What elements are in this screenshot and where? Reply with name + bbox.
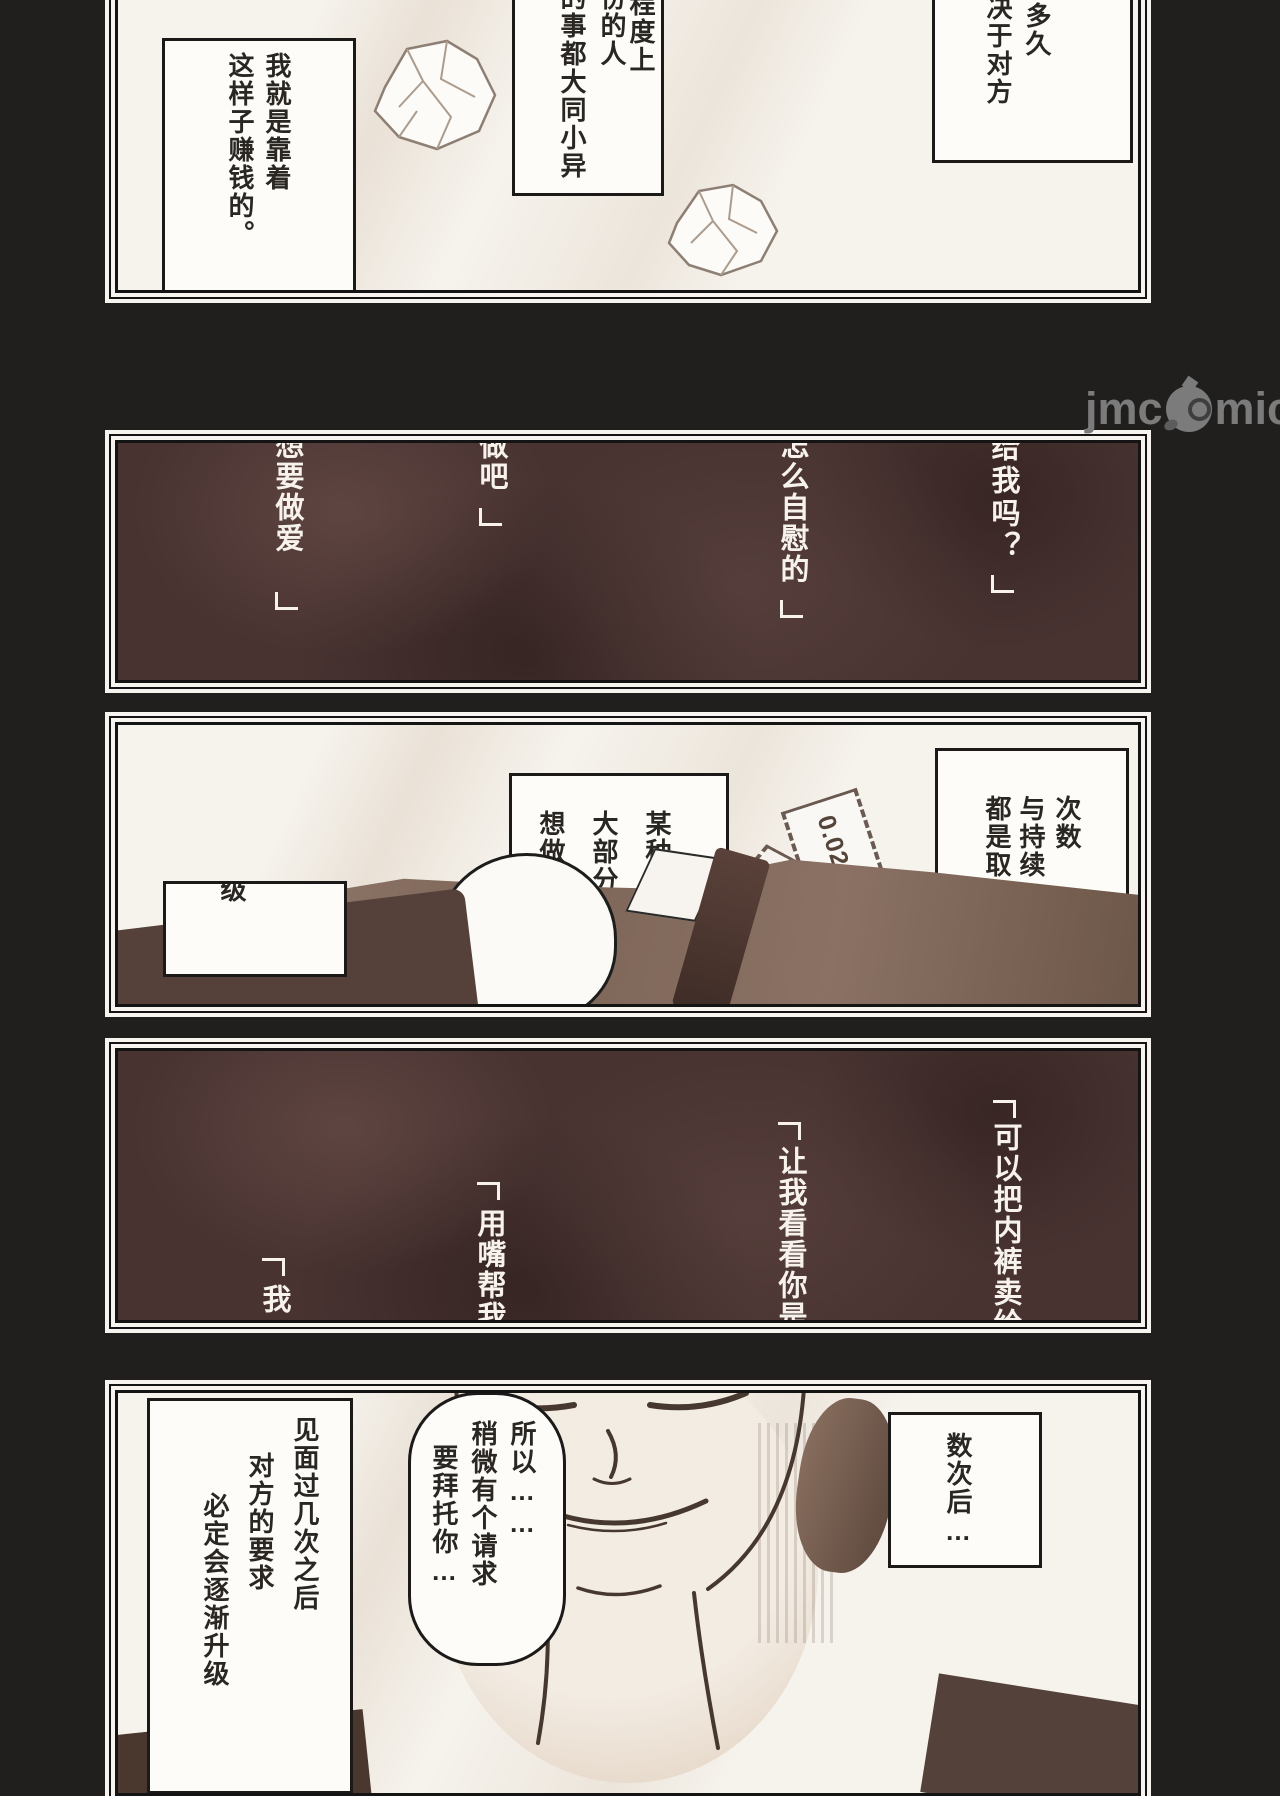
crumpled-paper-icon: [355, 25, 515, 165]
panel-2: 给我吗？ 怎么自慰的 做吧 想要做爱: [115, 440, 1141, 683]
dialogue-column: 程度上: [628, 0, 654, 74]
open-quote-bracket: [477, 1182, 500, 1200]
narration-column: 给我吗？: [988, 440, 1017, 564]
narration-column: 怎么自慰的: [777, 440, 806, 585]
panel-3: 某种程 大部分 想做的 次数 与持续 都是取 0.02 级: [115, 722, 1141, 1007]
dialogue-column: 稍微有个请求: [470, 1420, 496, 1588]
panel-4: 可以把内裤卖给 让我看看你是怎 用嘴帮我做 我: [115, 1048, 1141, 1323]
dialogue-column: 要拜托你…: [431, 1444, 457, 1588]
dialogue-column: 多久: [1024, 2, 1050, 58]
narration-column: 想要做爱: [272, 440, 301, 554]
watermark-text-right: mic: [1215, 383, 1280, 435]
dialogue-column: 的事都大同小异: [559, 0, 585, 180]
open-quote-bracket: [993, 1100, 1016, 1118]
close-quote-bracket: [780, 600, 803, 618]
dialogue-column: 我就是靠着: [264, 52, 290, 192]
narration-box: 级: [163, 881, 347, 977]
watermark-text-left: jmc: [1085, 383, 1163, 435]
dialogue-column: 与持续: [1018, 795, 1044, 879]
narration-column: 让我看看你是怎: [775, 1146, 804, 1323]
bird-mascot-icon: [1166, 386, 1212, 432]
panel-5: 数次后… 所以…… 稍微有个请求 要拜托你… 见面过几次之后 对方的要求 必定会…: [115, 1390, 1141, 1796]
narration-column: 我: [259, 1284, 288, 1315]
dialogue-column: 都是取: [984, 795, 1010, 879]
dialogue-column: 数次后…: [945, 1432, 971, 1548]
close-quote-bracket: [991, 575, 1014, 593]
comic-page: { "canvas": { "bg": "#201f1d" }, "waterm…: [0, 0, 1280, 1767]
dialogue-column: 所以……: [509, 1420, 535, 1540]
narration-column: 做吧: [476, 440, 505, 492]
close-quote-bracket: [275, 592, 298, 610]
site-watermark: jmc mic: [1085, 383, 1280, 435]
dialogue-column: 次数: [1054, 795, 1080, 851]
dialogue-column: 份的人: [599, 0, 625, 68]
dialogue-column: 必定会逐渐升级: [202, 1492, 228, 1688]
condom-label: 0.02: [810, 811, 854, 870]
narration-column: 用嘴帮我做: [474, 1208, 503, 1323]
dialogue-column: 这样子赚钱的。: [227, 52, 253, 248]
close-quote-bracket: [479, 508, 502, 526]
crumpled-paper-icon: [655, 175, 785, 280]
dialogue-column: 对方的要求: [247, 1452, 273, 1592]
panel-1: 我就是靠着 这样子赚钱的。 程度上 份的人 的事都大同小异 多久 决于对方: [115, 0, 1141, 293]
open-quote-bracket: [778, 1122, 801, 1140]
dialogue-column: 见面过几次之后: [292, 1416, 318, 1612]
narration-column: 可以把内裤卖给: [990, 1122, 1019, 1323]
dialogue-column: 大部分: [591, 810, 617, 894]
dialogue-column: 决于对方: [985, 0, 1011, 106]
open-quote-bracket: [262, 1258, 285, 1276]
dialogue-column: 级: [219, 881, 245, 904]
speech-bubble: [162, 38, 356, 293]
